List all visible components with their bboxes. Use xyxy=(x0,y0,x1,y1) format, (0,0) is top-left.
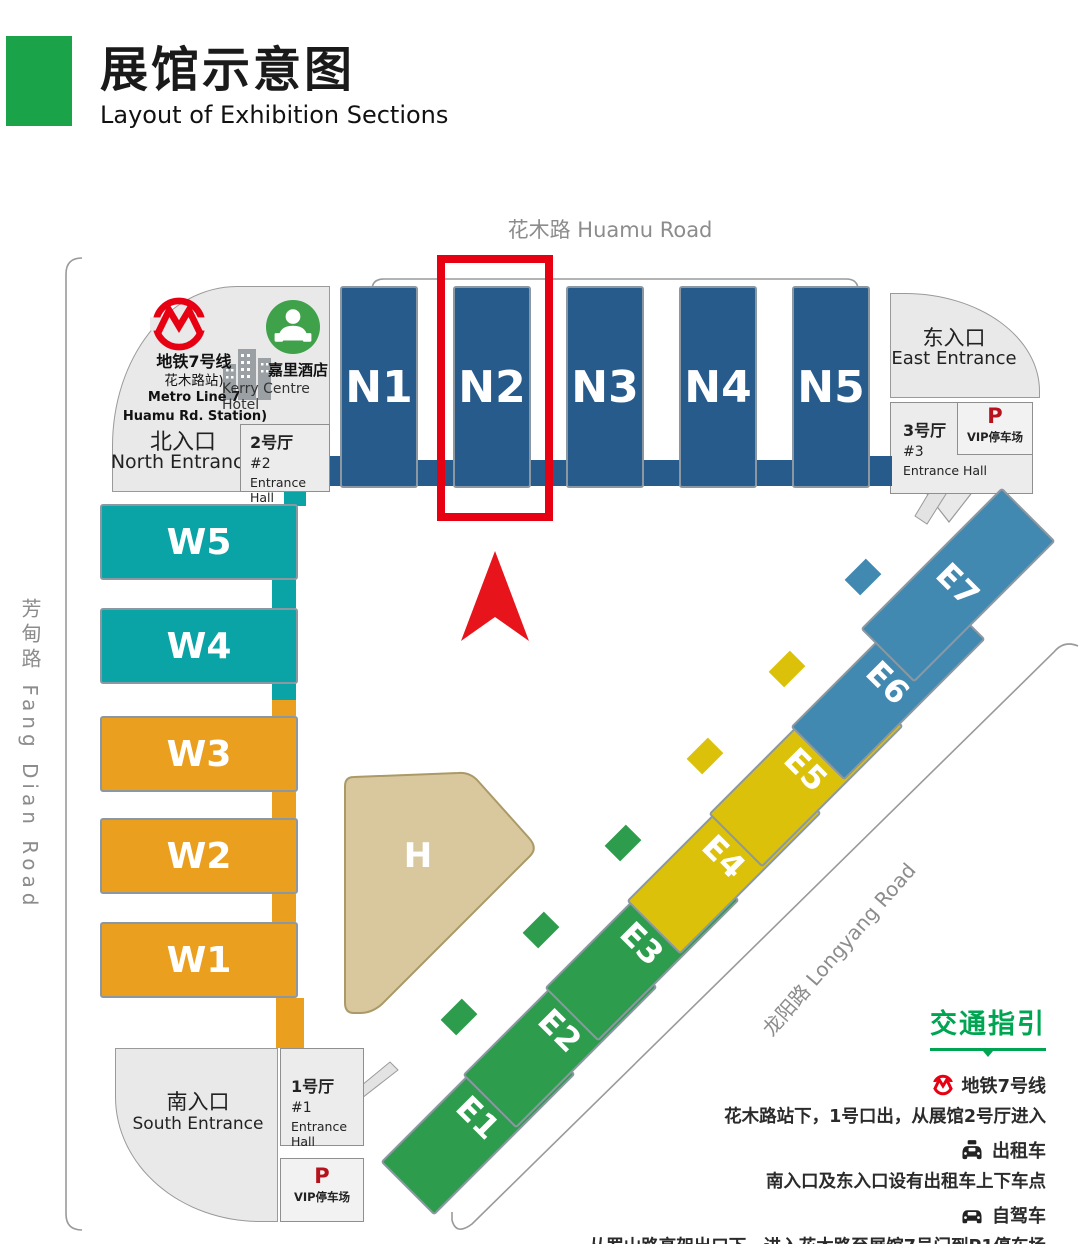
parking-icon: P xyxy=(958,406,1032,427)
vip-parking-east: P VIP停车场 xyxy=(957,402,1033,455)
hall2-label-en: Entrance Hall xyxy=(250,475,329,505)
title-accent-square xyxy=(6,36,72,126)
hall-e7-label: E7 xyxy=(928,555,987,614)
hall-w3-label: W3 xyxy=(167,734,232,775)
vip-parking-south: P VIP停车场 xyxy=(280,1158,364,1222)
hall-n5: N5 xyxy=(792,286,870,488)
hall-n3-label: N3 xyxy=(571,362,638,413)
page-title-zh: 展馆示意图 xyxy=(100,30,355,100)
hall-h-label: H xyxy=(396,836,440,876)
hotel-label-zh: 嘉里酒店 xyxy=(268,359,338,380)
north-entrance-label-en: North Entrance xyxy=(110,451,256,473)
corridor-n5-hall3 xyxy=(870,456,892,486)
guide-metro-row: 地铁7号线 xyxy=(560,1072,1046,1098)
hall-w2: W2 xyxy=(100,818,298,894)
corridor-n3-n4 xyxy=(644,460,679,486)
guide-drive-row: 自驾车 xyxy=(560,1202,1046,1228)
hall1-label-zh: 1号厅 xyxy=(291,1073,363,1097)
hall-h-shape xyxy=(345,773,534,1013)
vip-parking-label: VIP停车场 xyxy=(958,429,1032,445)
guide-taxi-text: 南入口及东入口设有出租车上下车点 xyxy=(560,1168,1046,1193)
entrance-hall-2: 2号厅 #2 Entrance Hall xyxy=(240,424,330,492)
hall2-label-zh: 2号厅 xyxy=(250,429,329,453)
south-entrance-label-zh: 南入口 xyxy=(138,1086,258,1116)
hall-w4: W4 xyxy=(100,608,298,684)
guide-metro-text: 花木路站下，1号口出，从展馆2号厅进入 xyxy=(560,1103,1046,1128)
hall-w5: W5 xyxy=(100,504,298,580)
corridor-w5-w4 xyxy=(272,580,296,608)
metro-small-icon xyxy=(932,1074,954,1096)
entrance-hall-1: 1号厅 #1 Entrance Hall xyxy=(280,1048,364,1146)
corridor-w4-w3-a xyxy=(272,684,296,700)
hall3-label-en: Entrance Hall xyxy=(903,463,1032,478)
hall-w1-label: W1 xyxy=(167,940,232,981)
hall-w1: W1 xyxy=(100,922,298,998)
guide-drive-heading: 自驾车 xyxy=(992,1202,1046,1228)
guide-metro-heading: 地铁7号线 xyxy=(961,1072,1046,1098)
hall-n1: N1 xyxy=(340,286,418,488)
corridor-w4-w3-b xyxy=(272,700,296,716)
hotel-icon xyxy=(266,300,320,354)
hall-w4-label: W4 xyxy=(167,626,232,667)
guide-drive-text: 从罗山路高架出口下，进入花木路至展馆7号门到P1停车场 xyxy=(560,1233,1046,1244)
hall-n3: N3 xyxy=(566,286,644,488)
hall-n5-label: N5 xyxy=(797,362,864,413)
traffic-guide-title: 交通指引 xyxy=(930,1009,1046,1040)
guide-taxi-row: 出租车 xyxy=(560,1137,1046,1163)
hall-w5-label: W5 xyxy=(167,522,232,563)
south-entrance-label-en: South Entrance xyxy=(128,1114,268,1134)
huamu-road-label: 花木路 Huamu Road xyxy=(450,214,770,244)
east-entrance-label-en: East Entrance xyxy=(888,348,1020,369)
corridor-w3-w2 xyxy=(272,792,296,818)
hall2-number: #2 xyxy=(250,456,329,472)
hall1-label-en: Entrance Hall xyxy=(291,1119,363,1149)
corridor-w2-w1 xyxy=(272,894,296,922)
hall-n4: N4 xyxy=(679,286,757,488)
taxi-icon xyxy=(959,1140,985,1161)
parking-icon: P xyxy=(281,1166,363,1187)
fangdian-road-line xyxy=(66,258,82,1230)
exhibition-map: 展馆示意图 Layout of Exhibition Sections 花木路 … xyxy=(0,0,1080,1244)
metro-logo-icon xyxy=(150,295,208,353)
guide-taxi-heading: 出租车 xyxy=(992,1137,1046,1163)
underline-notch xyxy=(983,1051,993,1057)
traffic-guide-title-underline: 交通指引 xyxy=(930,1002,1046,1051)
hall-w3: W3 xyxy=(100,716,298,792)
highlight-box-n2 xyxy=(437,255,553,521)
car-icon xyxy=(959,1205,985,1226)
vip-parking-label: VIP停车场 xyxy=(281,1189,363,1205)
fangdian-road-label: 芳甸路 Fang Dian Road xyxy=(16,598,45,910)
highlight-pointer-arrow xyxy=(458,549,532,645)
corridor-w1-hall1 xyxy=(276,998,304,1048)
hall1-number: #1 xyxy=(291,1100,363,1116)
hall-w2-label: W2 xyxy=(167,836,232,877)
page-title-en: Layout of Exhibition Sections xyxy=(100,101,448,129)
corridor-n4-n5 xyxy=(757,460,792,486)
hall-n4-label: N4 xyxy=(684,362,751,413)
hall-n1-label: N1 xyxy=(345,362,412,413)
traffic-guide: 交通指引 地铁7号线 花木路站下，1号口出，从展馆2号厅进入 xyxy=(560,1002,1046,1244)
hotel-label-en: Kerry Centre Hotel xyxy=(222,381,338,413)
